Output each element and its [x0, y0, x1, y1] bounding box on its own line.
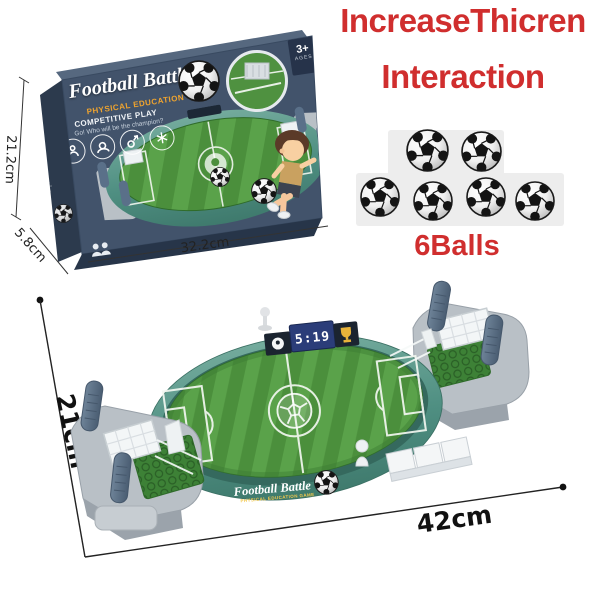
two-players-icon — [89, 241, 113, 259]
box-height-dimension: 21.2cm — [1, 129, 18, 189]
soccer-ball — [210, 167, 230, 187]
product-image: IncreaseThicren Interaction 6Balls — [0, 0, 600, 600]
promo-headline-line2: Interaction — [328, 58, 598, 96]
soccer-ball — [251, 178, 277, 204]
product-box: Football Battle PHYSICAL EDUCATION GAME … — [10, 22, 360, 292]
snowflake-icon — [148, 124, 176, 152]
promo-headline-line1: IncreaseThicren — [328, 2, 598, 40]
gloves-icon — [88, 133, 116, 161]
soccer-ball — [54, 204, 73, 223]
trophy-statue — [258, 307, 272, 331]
box-art-goal-inset — [226, 50, 288, 112]
soccer-ball — [360, 177, 400, 217]
box-art-boy — [262, 128, 326, 220]
game-table: 21cm 42cm — [28, 278, 578, 598]
soccer-ball — [466, 177, 506, 217]
balls-count-label: 6Balls — [352, 230, 562, 263]
table-length-dimension: 42cm — [415, 500, 494, 539]
game-table-drawing: 21cm 42cm — [28, 278, 578, 598]
soccer-ball — [515, 181, 555, 221]
soccer-ball — [461, 131, 502, 172]
soccer-ball — [178, 60, 220, 102]
goal-inset-drawing — [229, 53, 285, 109]
soccer-ball — [406, 129, 449, 172]
shoot-icon — [118, 128, 146, 156]
soccer-ball — [413, 181, 453, 221]
